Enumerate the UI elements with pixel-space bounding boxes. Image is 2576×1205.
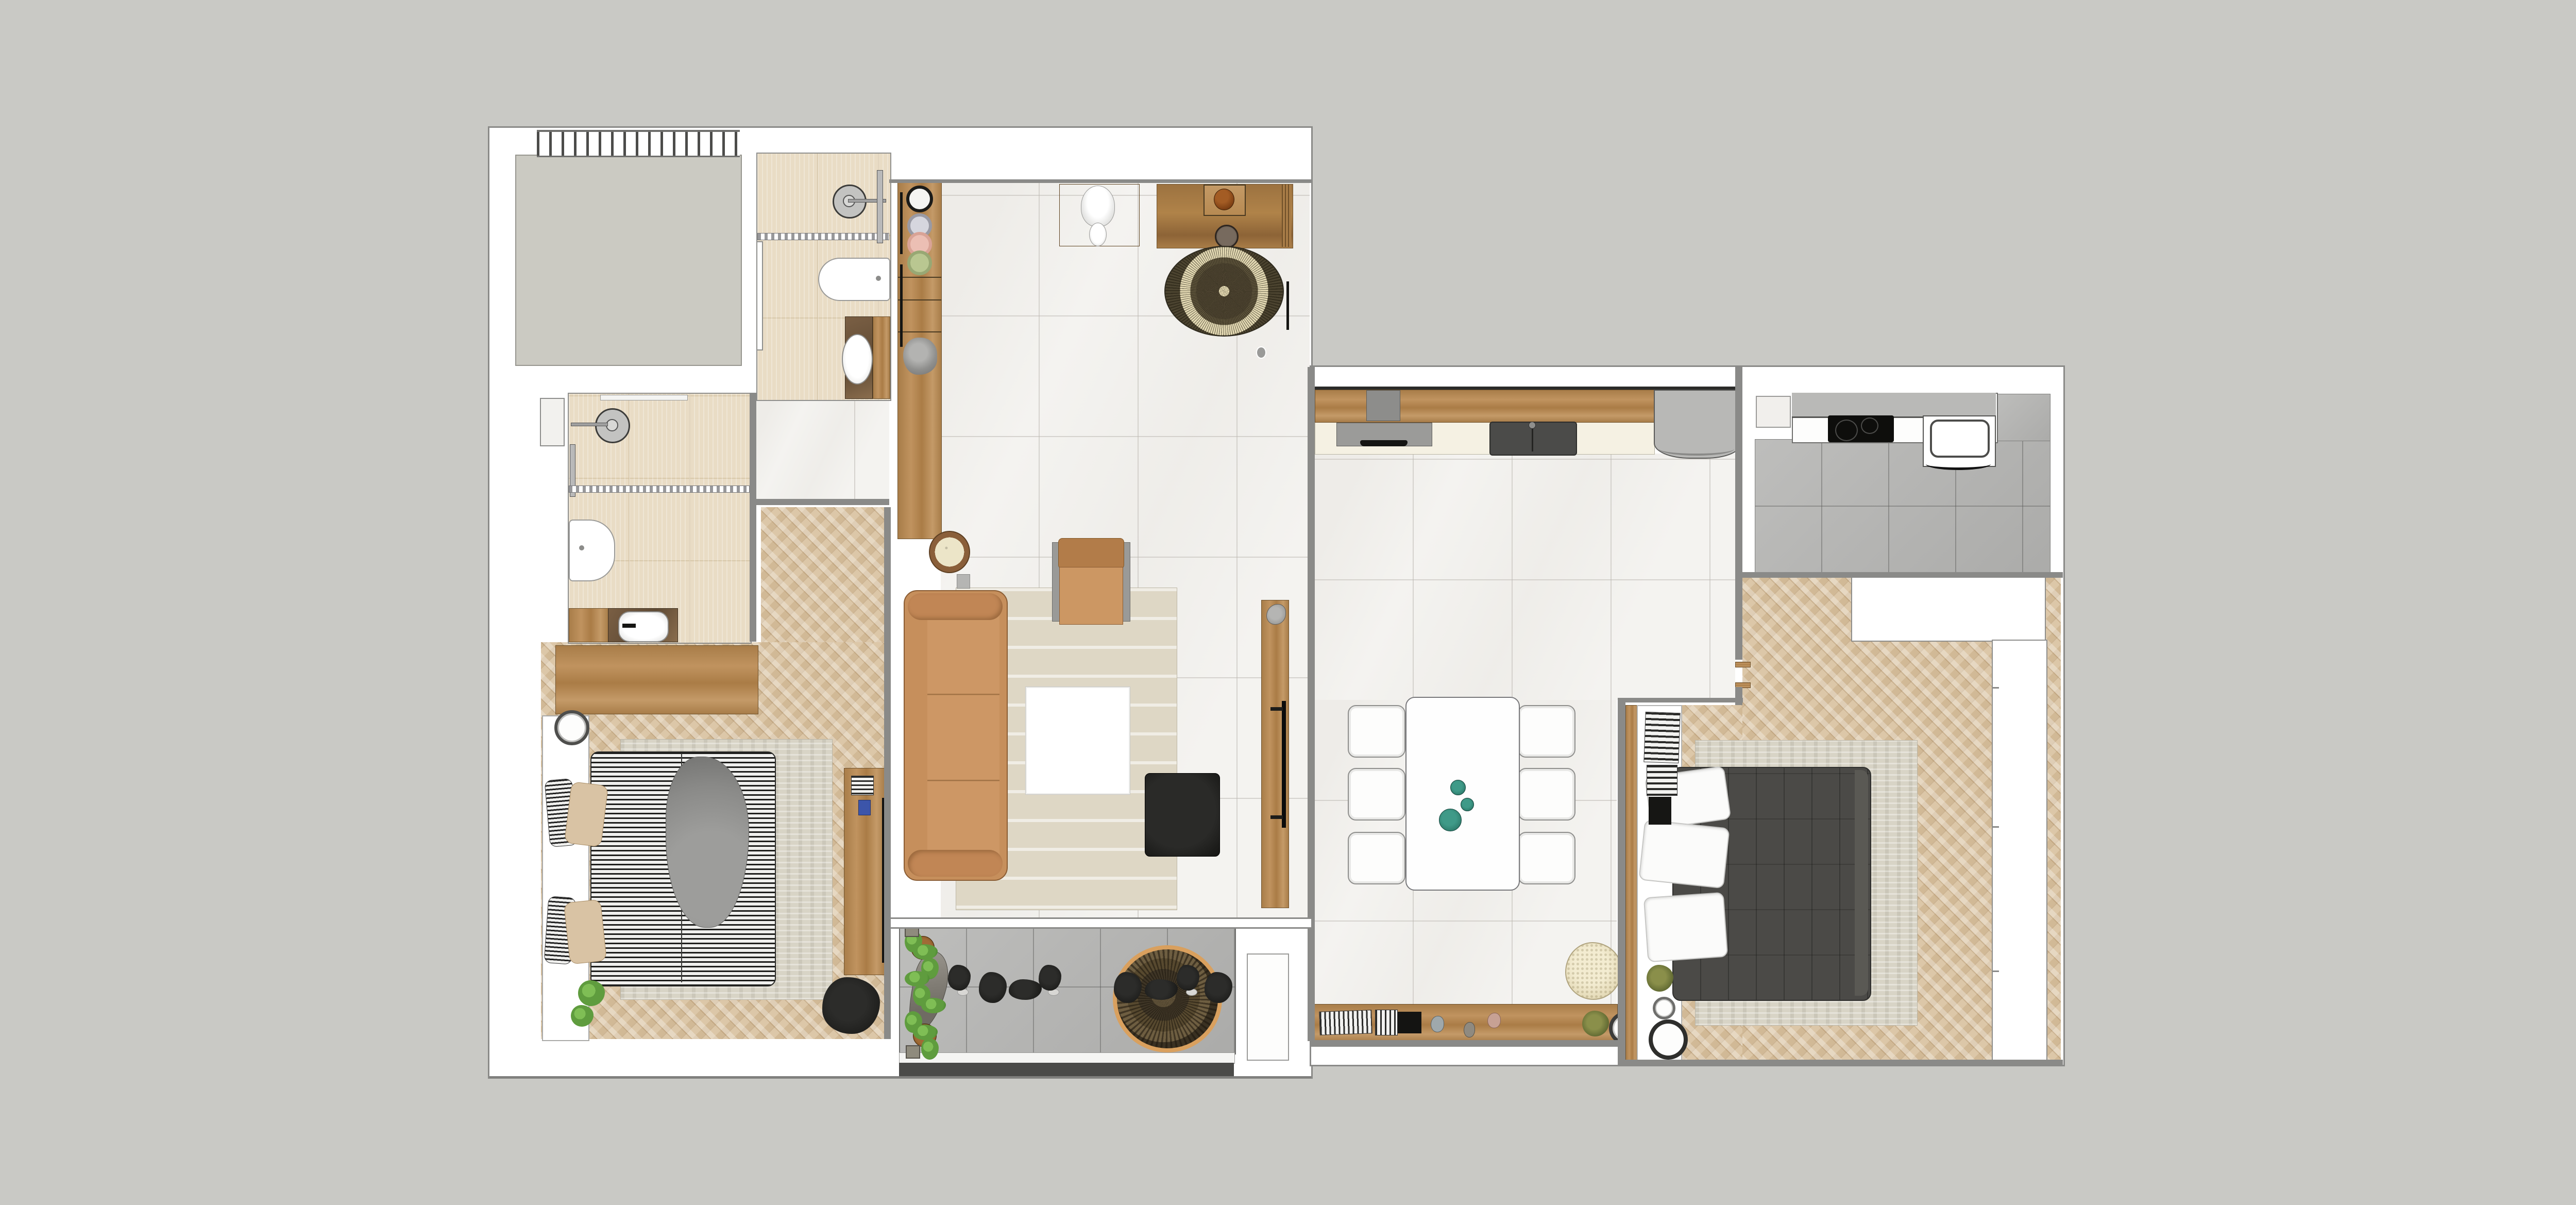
bedroom2-shelf-books [1643,712,1680,763]
wardrobe-shelf-tick [1993,970,1999,972]
shower-glass-partition [757,233,889,240]
kitchen-hood [1366,390,1400,421]
armchair-back-cushion [1058,538,1124,569]
wall-bath2-east [750,393,756,642]
sofa-armrest-bottom [908,850,1003,877]
floor-plan-canvas [0,0,2576,1205]
shower-channel [600,395,688,400]
entry-console [1157,184,1293,248]
washer-door [1930,420,1990,458]
shelf-plant-gray [903,338,937,375]
bedroom1-dresser [555,645,758,714]
sideboard-books-b [1375,1010,1398,1035]
balcony-railing [899,1063,1234,1076]
exterior-planter-box [1247,953,1289,1061]
kitchen-sink [1489,422,1577,456]
balcony-pot-square-2 [906,1045,920,1059]
wall-bedroom1-east [884,507,891,1039]
service-doormat [1756,396,1791,428]
bedroom1-round-mirror [554,710,589,745]
dining-bowl-teal [1450,780,1466,795]
entry-door-leaf [1286,281,1289,330]
bedroom2-shelf-books-2 [1647,765,1677,796]
wardrobe-shelf-tick [1993,687,1999,689]
statue-base [1089,223,1107,246]
bed2-pillow-c [1643,892,1728,963]
sideboard-figurine-c [1487,1013,1501,1028]
service-floor-tiles [1755,439,2050,573]
toilet-ensuite [569,520,615,581]
door-stopper [1256,346,1266,359]
sideboard-figurine-a [1431,1016,1444,1032]
dining-chair [1348,705,1405,758]
armchair-seat [1059,567,1123,625]
wall-service-south [1742,572,2063,578]
dining-bowl-teal [1439,809,1462,831]
shelf-divider [898,299,941,300]
dining-sideboard [1312,1004,1618,1042]
shower-arm-2 [571,423,608,426]
dining-chair [1518,832,1575,884]
dining-floor-upper [1315,454,1735,700]
wall-living-dining [1308,367,1315,1041]
wall-living-north [889,179,1311,183]
wall-niche-west-top [1618,698,1743,702]
ottoman-black [1145,773,1220,857]
bathroom-top-door [756,241,763,350]
bedroom2-headboard-panel [1625,705,1638,1063]
wall-dining-south [1311,1040,1618,1047]
shelf-side-rail [900,264,903,347]
tv-bracket-top [1270,707,1283,711]
toilet-ensuite-button [579,545,584,550]
sideboard-books-a [1319,1010,1372,1035]
sofa [904,590,1008,881]
cooktop-control-strip [1360,440,1408,446]
shower-valve [877,170,883,243]
washing-machine [1923,415,1996,467]
duct-niche [540,398,565,446]
cooktop-burner-small [1861,417,1878,434]
entry-round-rug [1164,246,1284,337]
vanity-cabinet-wood [873,316,890,399]
bedroom2-bowl [1653,997,1675,1019]
shelf-plate [906,186,933,212]
fridge-door-arc [1659,442,1734,456]
service-floor-tiles-right [1995,394,2050,441]
console-bowl [1215,225,1239,248]
kitchen-wall-line [1315,387,1740,390]
corridor-floor [756,399,889,505]
shelf-divider [898,277,941,278]
toilet-top-button [876,276,881,281]
shelf-plate [907,250,932,275]
induction-cooktop [1828,415,1894,442]
bed2-duvet-fold [1855,770,1868,996]
living-plant-pot [929,531,970,573]
coffee-table-white [1025,687,1130,795]
bedroom1-floor-upper [761,507,885,642]
sideboard-figurine-b [1464,1022,1475,1037]
desk-book-stack [851,776,874,795]
dining-bowl-teal [1461,798,1474,811]
dining-pouf-knit [1565,942,1622,1000]
cooktop-burner-large [1835,420,1858,441]
bedroom1-desk [844,768,885,975]
bed1-pillow-beige-b [564,899,607,965]
armchair [1052,538,1129,625]
wall-bedroom2-south [1618,1060,2063,1065]
fridge [1654,390,1742,459]
console-decor-ball [1214,189,1234,210]
statue-body [1081,186,1115,227]
ground-strip [489,1076,1311,1078]
dining-chair [1348,832,1405,884]
wall-corridor-bedroom1 [756,499,889,505]
washer-door-arc [1926,458,1991,470]
bedroom2-basket-ring [1649,1019,1688,1060]
bed2-pillow-b [1638,819,1730,889]
shower-glass-partition-2 [569,486,750,493]
vanity-sink-oval [842,334,873,384]
service-upper-cabinet [1792,393,1996,418]
bedroom2-speaker [1649,797,1671,825]
tv-screen [1282,701,1286,828]
sideboard-black-box [1398,1012,1421,1033]
vanity2-cabinet-wood [569,608,609,642]
tv-bracket-bottom [1270,815,1283,819]
vanity2-faucet [622,624,636,628]
desk-blue-item [858,800,871,815]
bedroom2-closet [1851,577,2046,642]
wall-living-south-window [891,917,1311,929]
sofa-seat [927,609,999,862]
shelf-divider [898,331,941,332]
wardrobe-shelf-tick [1993,826,1999,828]
dining-chair [1518,768,1575,821]
louver-hatch-strip [537,130,740,157]
wall-hall-bedroom2-upper [1735,367,1742,660]
bedroom2-door-jamb-a [1735,662,1751,667]
bed1-pillow-beige-a [564,781,608,847]
wall-dining-niche [1618,700,1625,1062]
shelf-side-rail [900,192,903,254]
sofa-armrest-top [908,593,1003,620]
entry-shelf-column [897,182,942,539]
bedroom2-wardrobe [1992,640,2047,1064]
sink-faucet [1529,422,1536,429]
console-panel-lines [1282,185,1291,247]
dining-chair [1348,768,1405,821]
sideboard-plant [1582,1011,1609,1036]
kitchen-upper-cabinets [1315,390,1655,423]
side-shelf-gray [957,574,970,589]
dining-chair [1518,705,1575,758]
patio-room [515,155,742,366]
balcony-sill [899,1052,1235,1064]
